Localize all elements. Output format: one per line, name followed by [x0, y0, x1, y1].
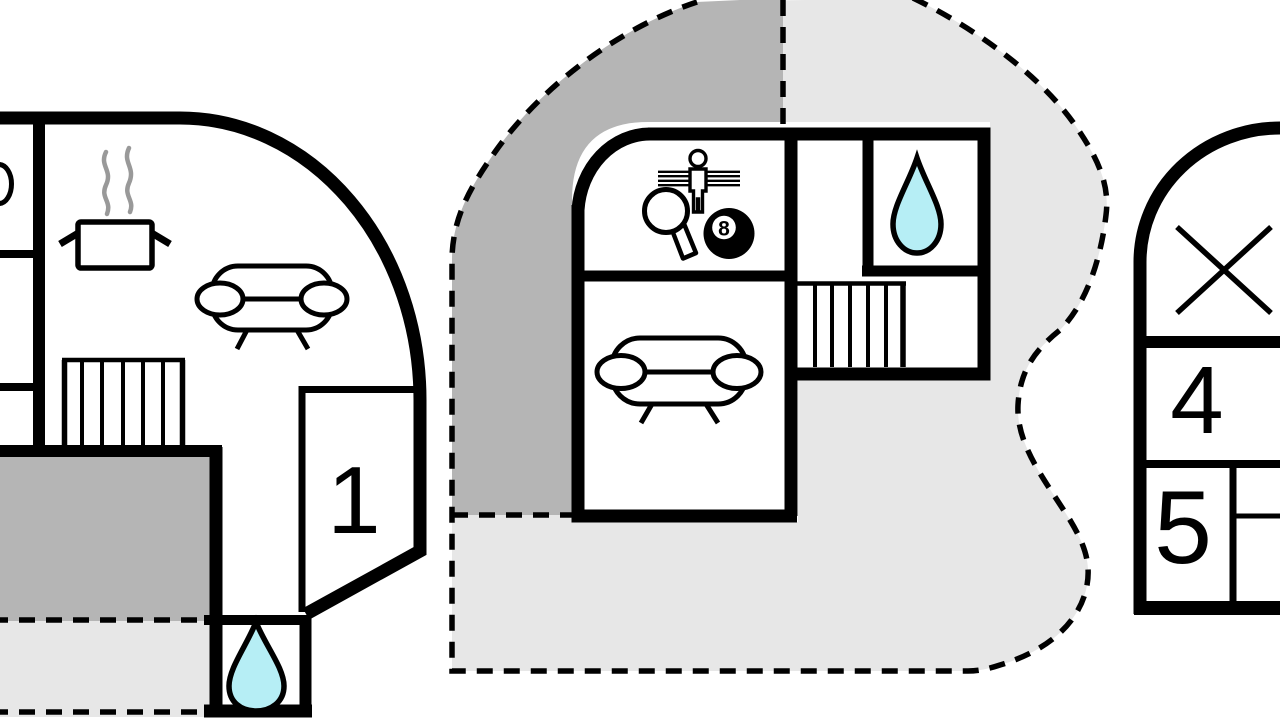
foosball-player-head: [690, 151, 706, 167]
open-terrace-area: [0, 621, 210, 717]
sofa-armrest: [301, 283, 347, 315]
sofa-armrest: [713, 356, 761, 389]
covered-terrace-area: [0, 449, 210, 621]
floor-plan-canvas: 8 1 4 5: [0, 0, 1280, 720]
ball-number: 8: [718, 218, 730, 241]
left-plan-terrace: [0, 449, 210, 717]
pot-body: [78, 222, 152, 268]
floor-plan-sheet: 8 1 4 5: [0, 0, 1280, 720]
paddle-blade: [645, 190, 688, 233]
room5-label: 5: [1154, 470, 1212, 586]
room4-label: 4: [1170, 347, 1223, 454]
room1-label: 1: [327, 447, 380, 554]
sofa-armrest: [197, 283, 243, 315]
washbasin-icon: [0, 165, 12, 204]
foosball-player-body: [690, 169, 706, 212]
sofa-armrest: [597, 356, 645, 389]
billiard-8-ball-icon: 8: [704, 208, 755, 259]
